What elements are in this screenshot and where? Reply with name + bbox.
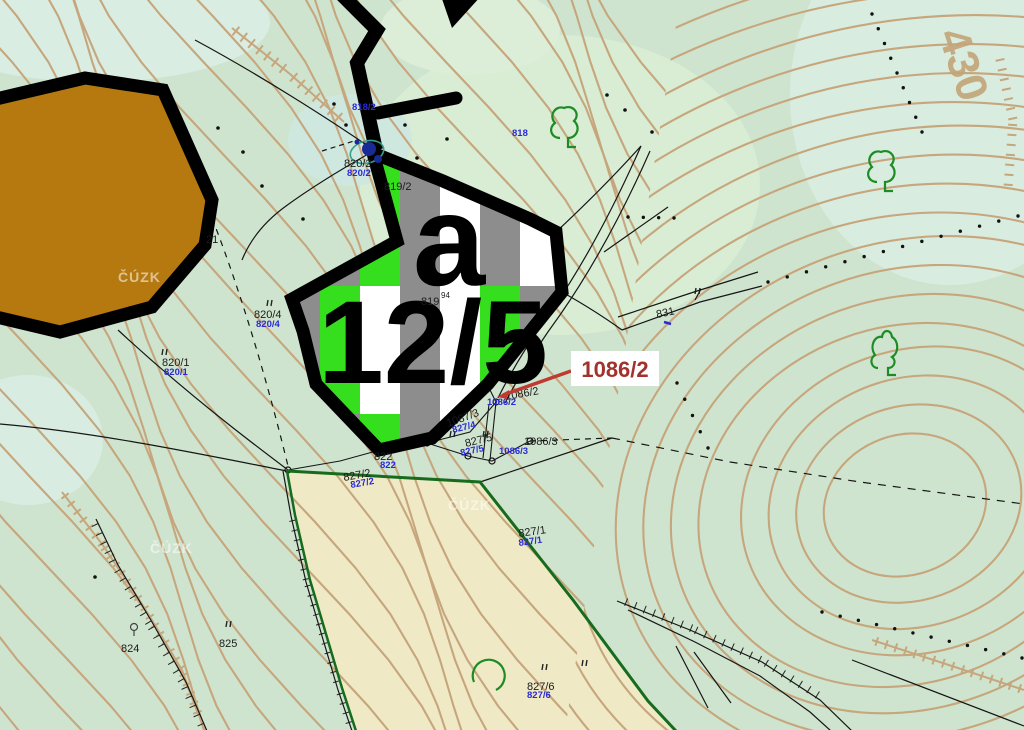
grass-mark (226, 621, 227, 627)
dotted-boundary (642, 216, 645, 219)
dotted-boundary (786, 275, 789, 278)
dotted-boundary (914, 116, 917, 119)
parcel-number-label: 1086/3 (524, 436, 558, 448)
parcel-number-label-blue: 820/4 (256, 319, 280, 330)
marker-dot (374, 155, 382, 163)
parcel-number-label: 824 (121, 643, 139, 655)
cadastral-map[interactable]: a 12/5 819/281994820/2820/4820/1211086/2… (0, 0, 1024, 730)
parcel-number-label-blue: 820/2 (347, 168, 371, 179)
parcel-number-label: 819 (421, 296, 439, 308)
dotted-boundary (875, 623, 878, 626)
dotted-boundary (699, 430, 702, 433)
dotted-boundary (908, 101, 911, 104)
point-symbol (623, 108, 627, 112)
point-symbol (605, 93, 609, 97)
point-symbol (344, 123, 348, 127)
point-symbol (445, 137, 449, 141)
grass-mark (166, 349, 167, 355)
dotted-boundary (820, 610, 823, 613)
watermark: ČÚZK (150, 539, 193, 556)
parcel-number-label-blue: 818 (512, 128, 528, 139)
point-symbol (650, 130, 654, 134)
point-symbol (241, 150, 245, 154)
hachure-tick (1007, 145, 1016, 146)
dotted-boundary (895, 71, 898, 74)
point-symbol (260, 184, 264, 188)
dotted-boundary (683, 398, 686, 401)
parcel-number-label: 819/2 (384, 181, 412, 193)
dotted-boundary (901, 245, 904, 248)
dotted-boundary (978, 224, 981, 227)
dotted-boundary (997, 219, 1000, 222)
hachure-tick (1005, 165, 1014, 166)
dotted-boundary (882, 250, 885, 253)
grass-mark (546, 664, 547, 670)
dotted-boundary (862, 255, 865, 258)
dotted-boundary (959, 230, 962, 233)
dotted-boundary (824, 265, 827, 268)
dotted-boundary (838, 614, 841, 617)
parcel-number-label-blue: 818/2 (352, 102, 376, 113)
point-symbol (332, 102, 336, 106)
point-symbol (93, 575, 97, 579)
marker-dot (362, 142, 376, 156)
grass-mark (582, 660, 583, 666)
point-symbol (403, 123, 407, 127)
dotted-boundary (766, 280, 769, 283)
dotted-boundary (911, 631, 914, 634)
hachure-tick (1004, 184, 1013, 185)
dotted-boundary (877, 27, 880, 30)
dotted-boundary (675, 381, 678, 384)
hachure-tick (1008, 125, 1017, 126)
dotted-boundary (657, 216, 660, 219)
marker-dot (355, 140, 360, 145)
dotted-boundary (626, 215, 629, 218)
dotted-boundary (870, 12, 873, 15)
dotted-boundary (672, 216, 675, 219)
parcel-number-label-blue: 1086/3 (499, 446, 528, 457)
grass-mark (450, 431, 451, 437)
hachure-tick (1006, 155, 1015, 156)
point-symbol (415, 156, 419, 160)
hachure-tick (1007, 135, 1016, 136)
dotted-boundary (948, 640, 951, 643)
parcel-number-label-blue: 820/1 (164, 367, 188, 378)
parcel-number-label-blue: 1086/2 (487, 397, 516, 408)
parcel-number-label: 825 (219, 638, 237, 650)
dotted-boundary (929, 635, 932, 638)
dotted-boundary (1020, 656, 1023, 659)
dotted-boundary (1002, 652, 1005, 655)
parcel-number-label: 94 (441, 291, 450, 300)
point-symbol (301, 217, 305, 221)
dotted-boundary (857, 619, 860, 622)
dotted-boundary (966, 644, 969, 647)
parcel-number-label: 21 (206, 234, 218, 246)
parcel-number-label-blue: 822 (380, 460, 396, 471)
dotted-boundary (691, 414, 694, 417)
dotted-boundary (984, 648, 987, 651)
hachure-tick (1004, 175, 1013, 176)
dotted-boundary (939, 235, 942, 238)
grass-mark (162, 349, 163, 355)
grass-mark (267, 300, 268, 306)
dotted-boundary (1016, 214, 1019, 217)
dotted-boundary (706, 446, 709, 449)
watermark: ČÚZK (448, 496, 491, 513)
dotted-boundary (889, 57, 892, 60)
dotted-boundary (805, 270, 808, 273)
parcel-number-label-blue: 827/6 (527, 690, 551, 701)
dotted-boundary (893, 627, 896, 630)
map-viewport[interactable]: a 12/5 819/281994820/2820/4820/1211086/2… (0, 0, 1024, 730)
dotted-boundary (920, 130, 923, 133)
dotted-boundary (883, 42, 886, 45)
watermark: ČÚZK (118, 268, 161, 285)
point-symbol (216, 126, 220, 130)
dotted-boundary (902, 86, 905, 89)
grass-mark (586, 660, 587, 666)
highlight-label: 1086/2 (581, 357, 648, 382)
grass-mark (271, 300, 272, 306)
dotted-boundary (843, 260, 846, 263)
grass-mark (542, 664, 543, 670)
dotted-boundary (920, 240, 923, 243)
grass-mark (230, 621, 231, 627)
